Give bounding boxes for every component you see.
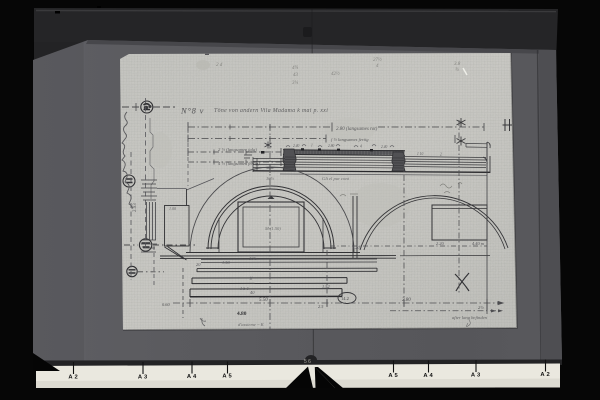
svg-text:Töne von andern Vila Madama: Töne von andern Vila Madama k mai p. xxi xyxy=(214,108,328,114)
svg-text:2.40: 2.40 xyxy=(293,144,299,148)
svg-text:4.80: 4.80 xyxy=(237,311,247,317)
svg-text:N°8 v: N°8 v xyxy=(180,106,204,116)
svg-text:1.52: 1.52 xyxy=(322,284,330,289)
svg-text:2.80 (langsames rot): 2.80 (langsames rot) xyxy=(336,127,378,132)
svg-text:2 ½ (langsamer jalg): 2 ½ (langsamer jalg) xyxy=(218,147,257,152)
svg-text:2.20: 2.20 xyxy=(436,241,444,246)
svg-text:1: 1 xyxy=(311,144,313,148)
svg-text:1 b 1: 1 b 1 xyxy=(240,286,249,291)
svg-text:2.40: 2.40 xyxy=(381,145,387,149)
svg-text:3.8: 3.8 xyxy=(454,62,461,67)
svg-text:Gli el pur cont: Gli el pur cont xyxy=(322,176,350,181)
svg-text:2.80: 2.80 xyxy=(402,298,411,303)
svg-text:14.2: 14.2 xyxy=(341,296,349,301)
svg-text:¾: ¾ xyxy=(455,68,459,73)
svg-text:4: 4 xyxy=(360,144,362,148)
svg-text:4.40 m: 4.40 m xyxy=(472,241,484,246)
svg-text:1.50: 1.50 xyxy=(222,260,230,265)
svg-text:0.60: 0.60 xyxy=(162,302,170,307)
svg-text:4¾: 4¾ xyxy=(292,66,299,71)
svg-text:M (1.50): M (1.50) xyxy=(264,226,281,231)
svg-text:2.5: 2.5 xyxy=(318,304,324,309)
svg-text:1.00: 1.00 xyxy=(169,206,176,211)
svg-text:f ½ langsames fertig: f ½ langsames fertig xyxy=(331,137,369,142)
svg-text:2.80: 2.80 xyxy=(328,144,334,148)
svg-text:d'assieme ~ K: d'assieme ~ K xyxy=(238,322,265,327)
svg-text:10½: 10½ xyxy=(249,256,257,261)
svg-text:42½: 42½ xyxy=(331,72,340,77)
svg-text:5 6: 5 6 xyxy=(304,359,311,365)
svg-text:27½: 27½ xyxy=(373,58,382,63)
svg-text:2: 2 xyxy=(547,372,550,378)
svg-text:2.93: 2.93 xyxy=(133,203,138,212)
svg-text:2½: 2½ xyxy=(478,305,484,310)
svg-text:43: 43 xyxy=(293,73,299,78)
svg-text:after lang befinden: after lang befinden xyxy=(452,315,488,320)
svg-text:5.50: 5.50 xyxy=(259,298,268,303)
svg-text:2: 2 xyxy=(440,152,442,156)
svg-text:1.20: 1.20 xyxy=(352,245,360,250)
svg-text:1 10: 1 10 xyxy=(417,152,423,156)
svg-text:2 d: 2 d xyxy=(216,63,223,68)
svg-text:2: 2 xyxy=(75,375,78,381)
svg-text:3¼: 3¼ xyxy=(292,81,299,86)
